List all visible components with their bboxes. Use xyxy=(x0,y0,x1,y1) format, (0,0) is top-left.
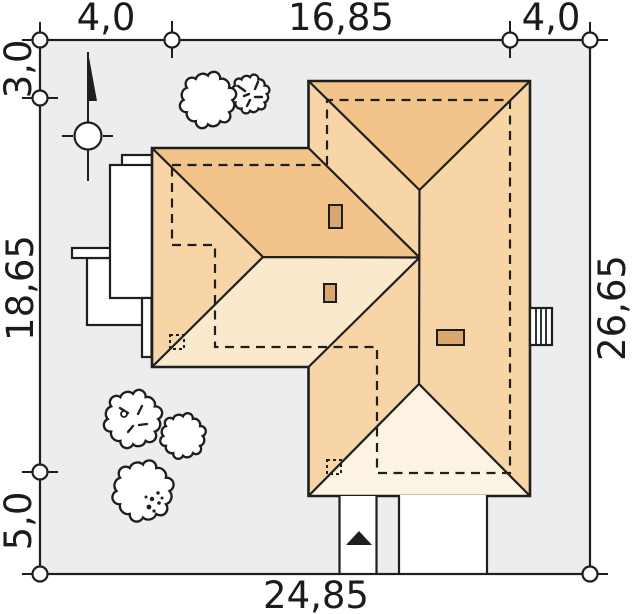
tree-icon xyxy=(112,460,173,521)
circle-marker-icon xyxy=(583,567,598,582)
dimension-label-top-right: 4,0 xyxy=(522,0,581,39)
tree-icon xyxy=(180,72,236,128)
circle-marker-icon xyxy=(583,33,598,48)
walkway xyxy=(340,496,377,574)
dimension-label-bottom: 24,85 xyxy=(263,574,369,614)
tree-icon xyxy=(104,390,162,448)
chimney xyxy=(324,284,336,302)
chimney xyxy=(329,205,342,228)
site-plan-drawing: 4,0 16,85 4,0 3,0 18,65 5,0 26,65 24,85 xyxy=(0,0,634,614)
circle-marker-icon xyxy=(33,567,48,582)
circle-marker-icon xyxy=(165,33,180,48)
circle-marker-icon xyxy=(33,465,48,480)
chimney xyxy=(437,330,464,345)
site-plan: 4,0 16,85 4,0 3,0 18,65 5,0 26,65 24,85 xyxy=(0,0,634,614)
circle-marker-icon xyxy=(503,33,518,48)
terrace-strip xyxy=(142,298,152,357)
dimension-label-top-left: 4,0 xyxy=(77,0,136,39)
dimension-label-left-middle: 18,65 xyxy=(0,235,42,341)
tree-icon xyxy=(160,413,206,459)
driveway xyxy=(399,495,487,574)
dimension-label-right: 26,65 xyxy=(591,255,634,361)
dimension-label-left-top: 3,0 xyxy=(0,40,40,99)
dimension-label-left-bottom: 5,0 xyxy=(0,492,40,551)
terrace-step-left xyxy=(72,248,111,258)
terrace-main xyxy=(110,165,153,298)
dimension-label-top-middle: 16,85 xyxy=(288,0,394,39)
roof-vent xyxy=(530,308,552,345)
